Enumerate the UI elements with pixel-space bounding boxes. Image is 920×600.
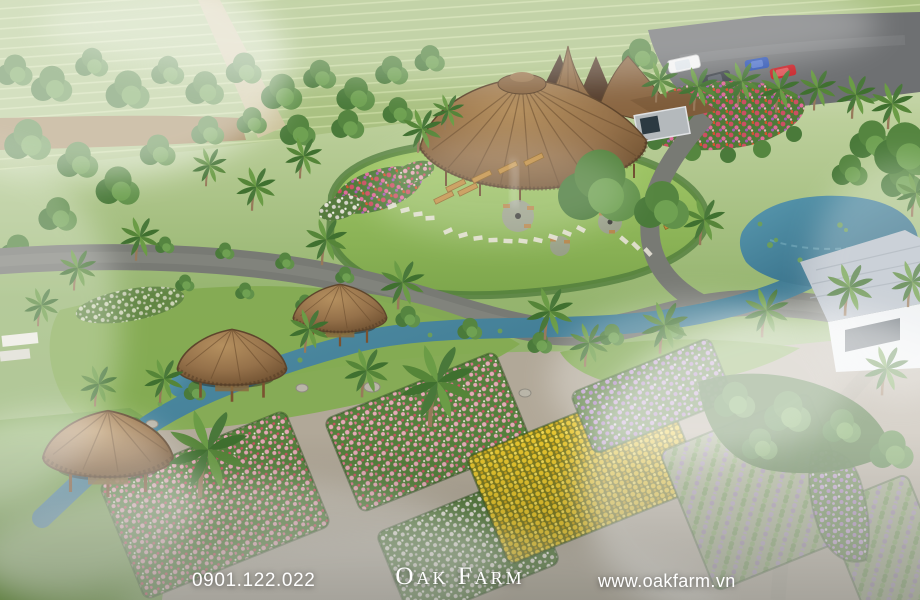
phone-number: 0901.122.022 [192, 570, 315, 592]
vignette [0, 0, 920, 600]
oak-farm-aerial-render: 0901.122.022 Oak Farm www.oakfarm.vn [0, 0, 920, 600]
scene-canvas [0, 0, 920, 600]
website-url: www.oakfarm.vn [598, 571, 736, 592]
brand-title: Oak Farm [395, 563, 524, 591]
